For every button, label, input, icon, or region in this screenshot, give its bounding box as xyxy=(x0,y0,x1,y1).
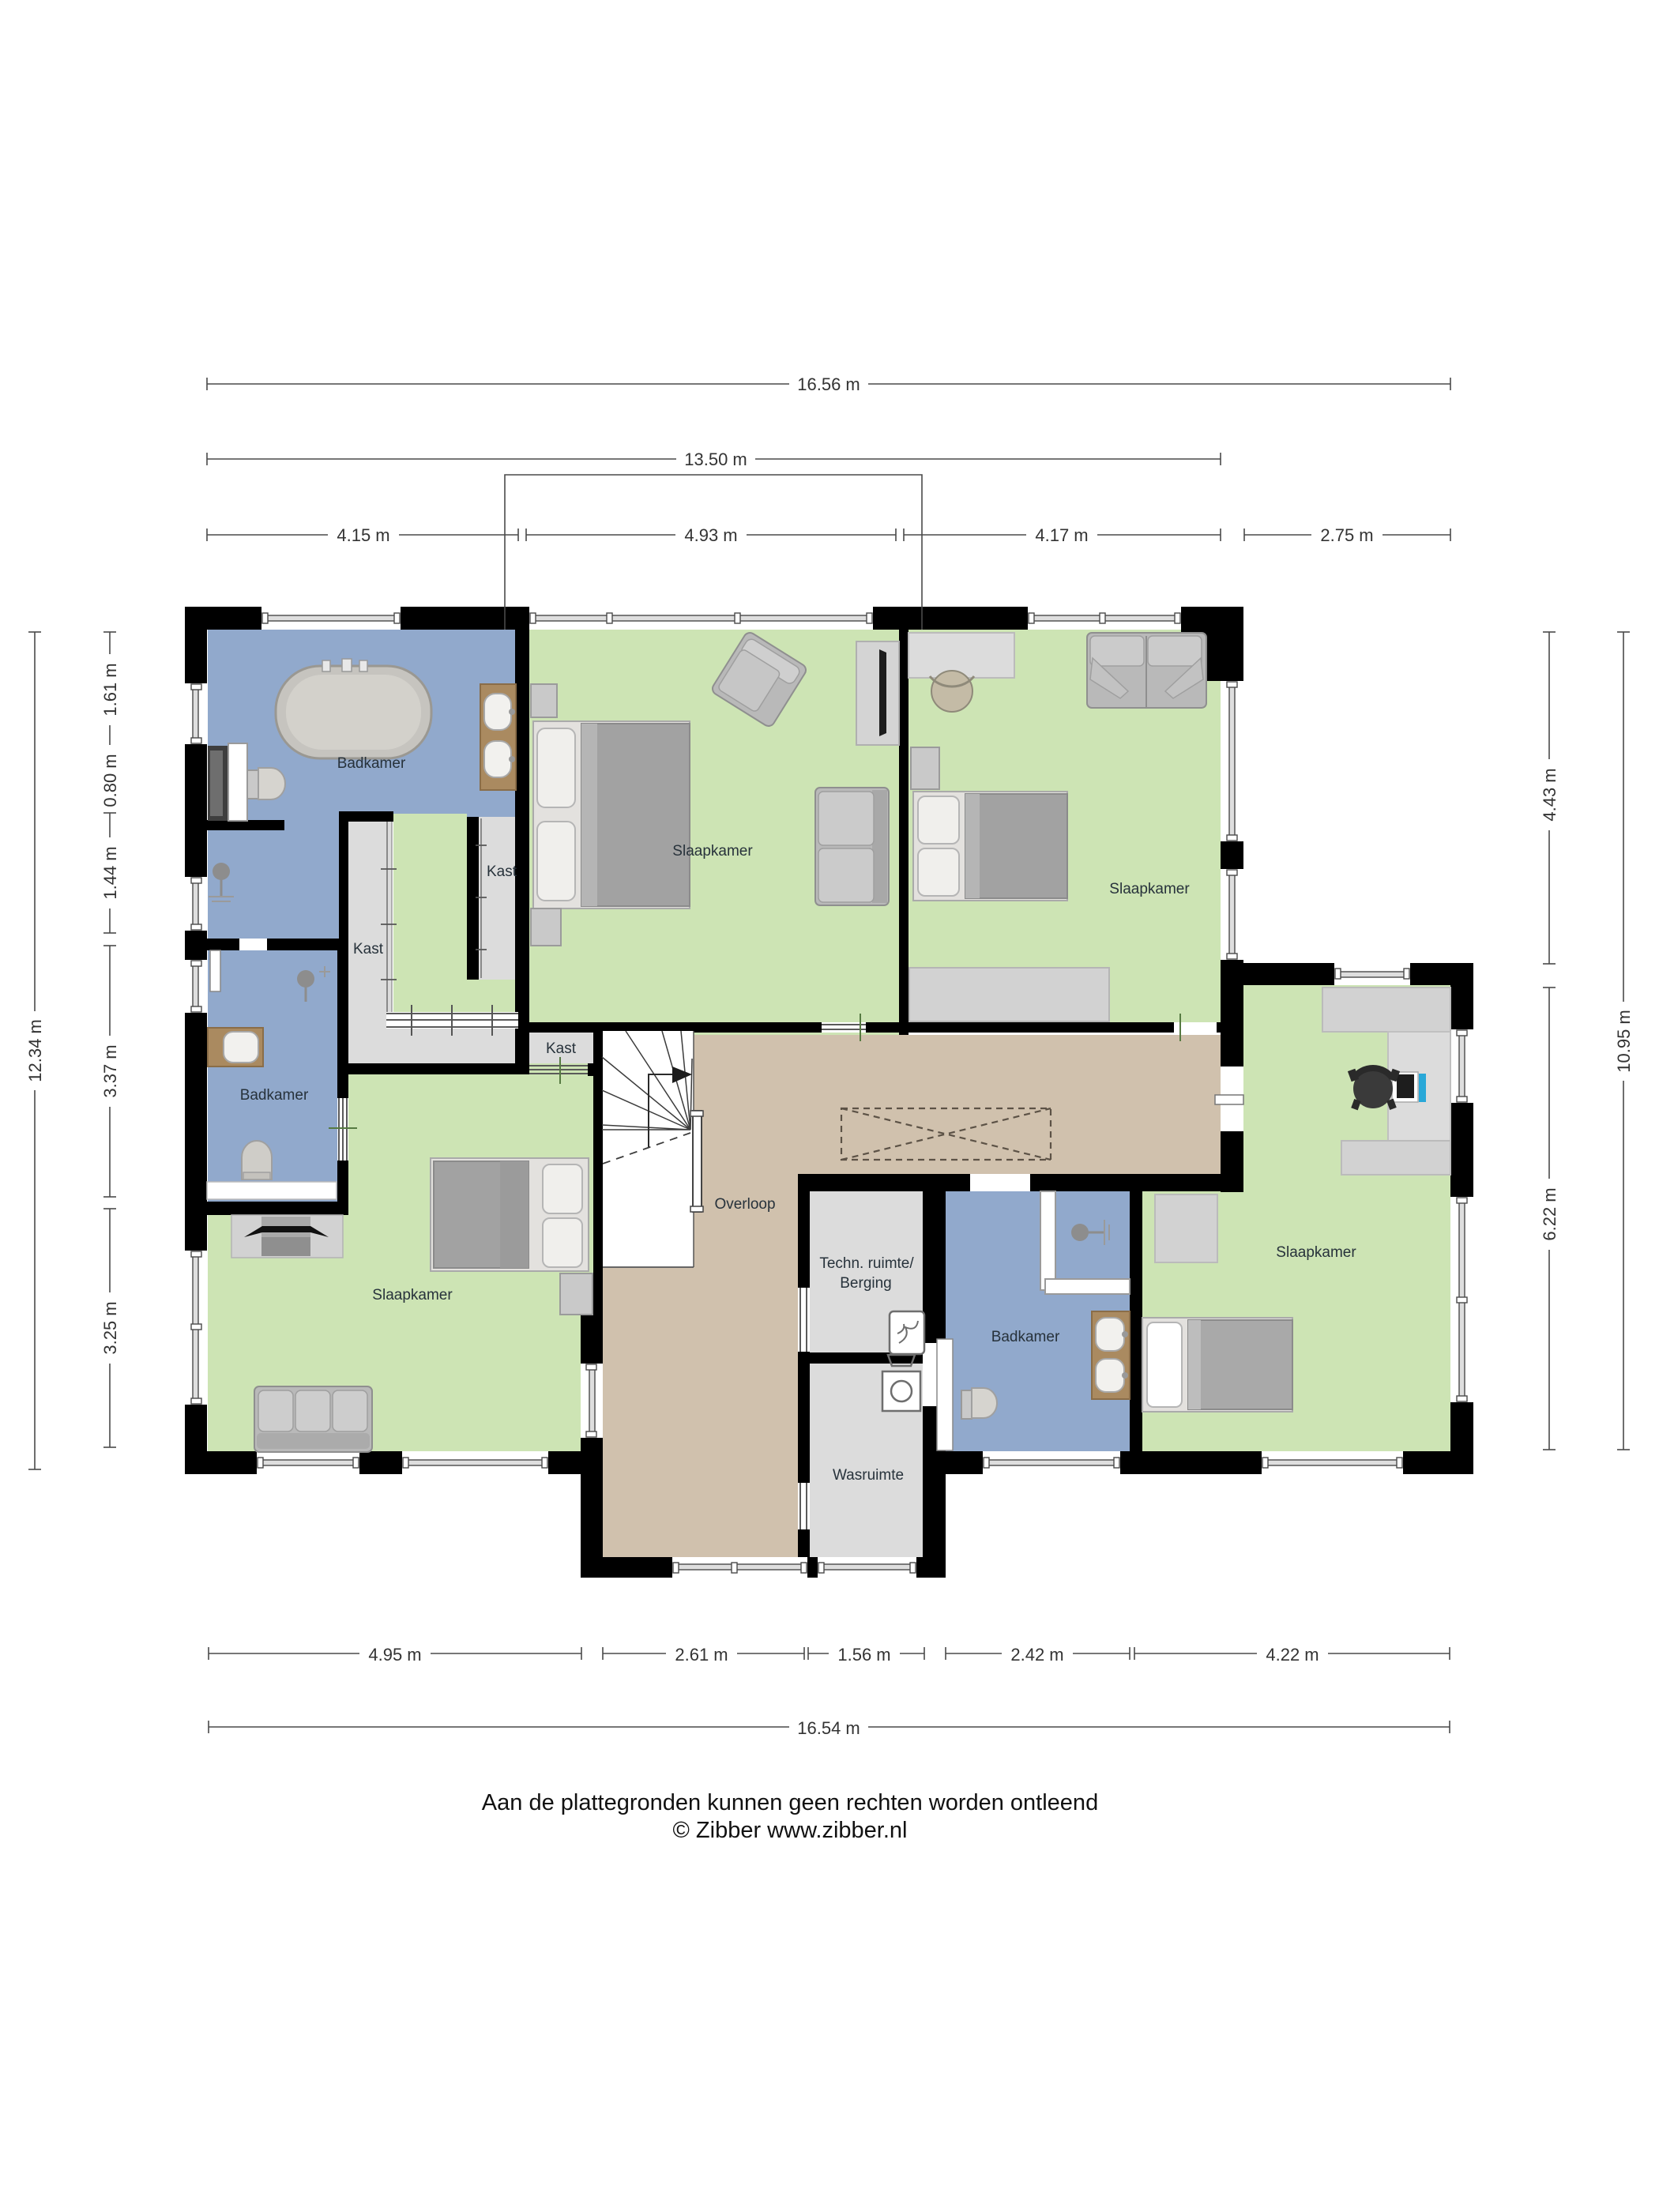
svg-text:3.25 m: 3.25 m xyxy=(100,1301,120,1354)
svg-text:Techn. ruimte/: Techn. ruimte/ xyxy=(819,1255,914,1272)
svg-text:10.95 m: 10.95 m xyxy=(1614,1010,1634,1073)
svg-text:4.17 m: 4.17 m xyxy=(1035,525,1088,545)
svg-text:Slaapkamer: Slaapkamer xyxy=(372,1287,453,1303)
svg-text:4.22 m: 4.22 m xyxy=(1266,1645,1319,1665)
svg-text:Slaapkamer: Slaapkamer xyxy=(1109,881,1190,897)
svg-text:Slaapkamer: Slaapkamer xyxy=(1276,1244,1356,1261)
svg-text:Wasruimte: Wasruimte xyxy=(833,1467,904,1484)
svg-text:Kast: Kast xyxy=(487,863,517,880)
svg-text:2.42 m: 2.42 m xyxy=(1010,1645,1063,1665)
svg-text:4.43 m: 4.43 m xyxy=(1540,768,1559,821)
svg-text:2.75 m: 2.75 m xyxy=(1320,525,1373,545)
svg-text:6.22 m: 6.22 m xyxy=(1540,1187,1559,1240)
svg-text:Badkamer: Badkamer xyxy=(991,1329,1060,1345)
svg-text:1.44 m: 1.44 m xyxy=(100,846,120,899)
svg-text:1.56 m: 1.56 m xyxy=(837,1645,890,1665)
svg-text:4.15 m: 4.15 m xyxy=(337,525,389,545)
svg-text:16.54 m: 16.54 m xyxy=(797,1718,860,1738)
svg-text:© Zibber www.zibber.nl: © Zibber www.zibber.nl xyxy=(673,1818,908,1843)
svg-text:4.93 m: 4.93 m xyxy=(684,525,737,545)
svg-text:Berging: Berging xyxy=(840,1275,892,1292)
svg-text:12.34 m: 12.34 m xyxy=(25,1019,45,1082)
svg-text:1.61 m: 1.61 m xyxy=(100,663,120,716)
svg-text:Badkamer: Badkamer xyxy=(240,1087,309,1104)
svg-text:13.50 m: 13.50 m xyxy=(684,450,747,469)
svg-text:Kast: Kast xyxy=(546,1040,577,1057)
svg-text:Slaapkamer: Slaapkamer xyxy=(672,843,753,860)
svg-text:Badkamer: Badkamer xyxy=(337,755,406,772)
svg-text:16.56 m: 16.56 m xyxy=(797,374,860,394)
svg-text:3.37 m: 3.37 m xyxy=(100,1044,120,1097)
svg-text:4.95 m: 4.95 m xyxy=(368,1645,421,1665)
svg-text:Aan de plattegronden kunnen ge: Aan de plattegronden kunnen geen rechten… xyxy=(482,1790,1098,1815)
svg-text:Kast: Kast xyxy=(353,941,384,957)
svg-text:0.80 m: 0.80 m xyxy=(100,754,120,807)
svg-text:Overloop: Overloop xyxy=(714,1196,775,1213)
svg-text:2.61 m: 2.61 m xyxy=(675,1645,728,1665)
